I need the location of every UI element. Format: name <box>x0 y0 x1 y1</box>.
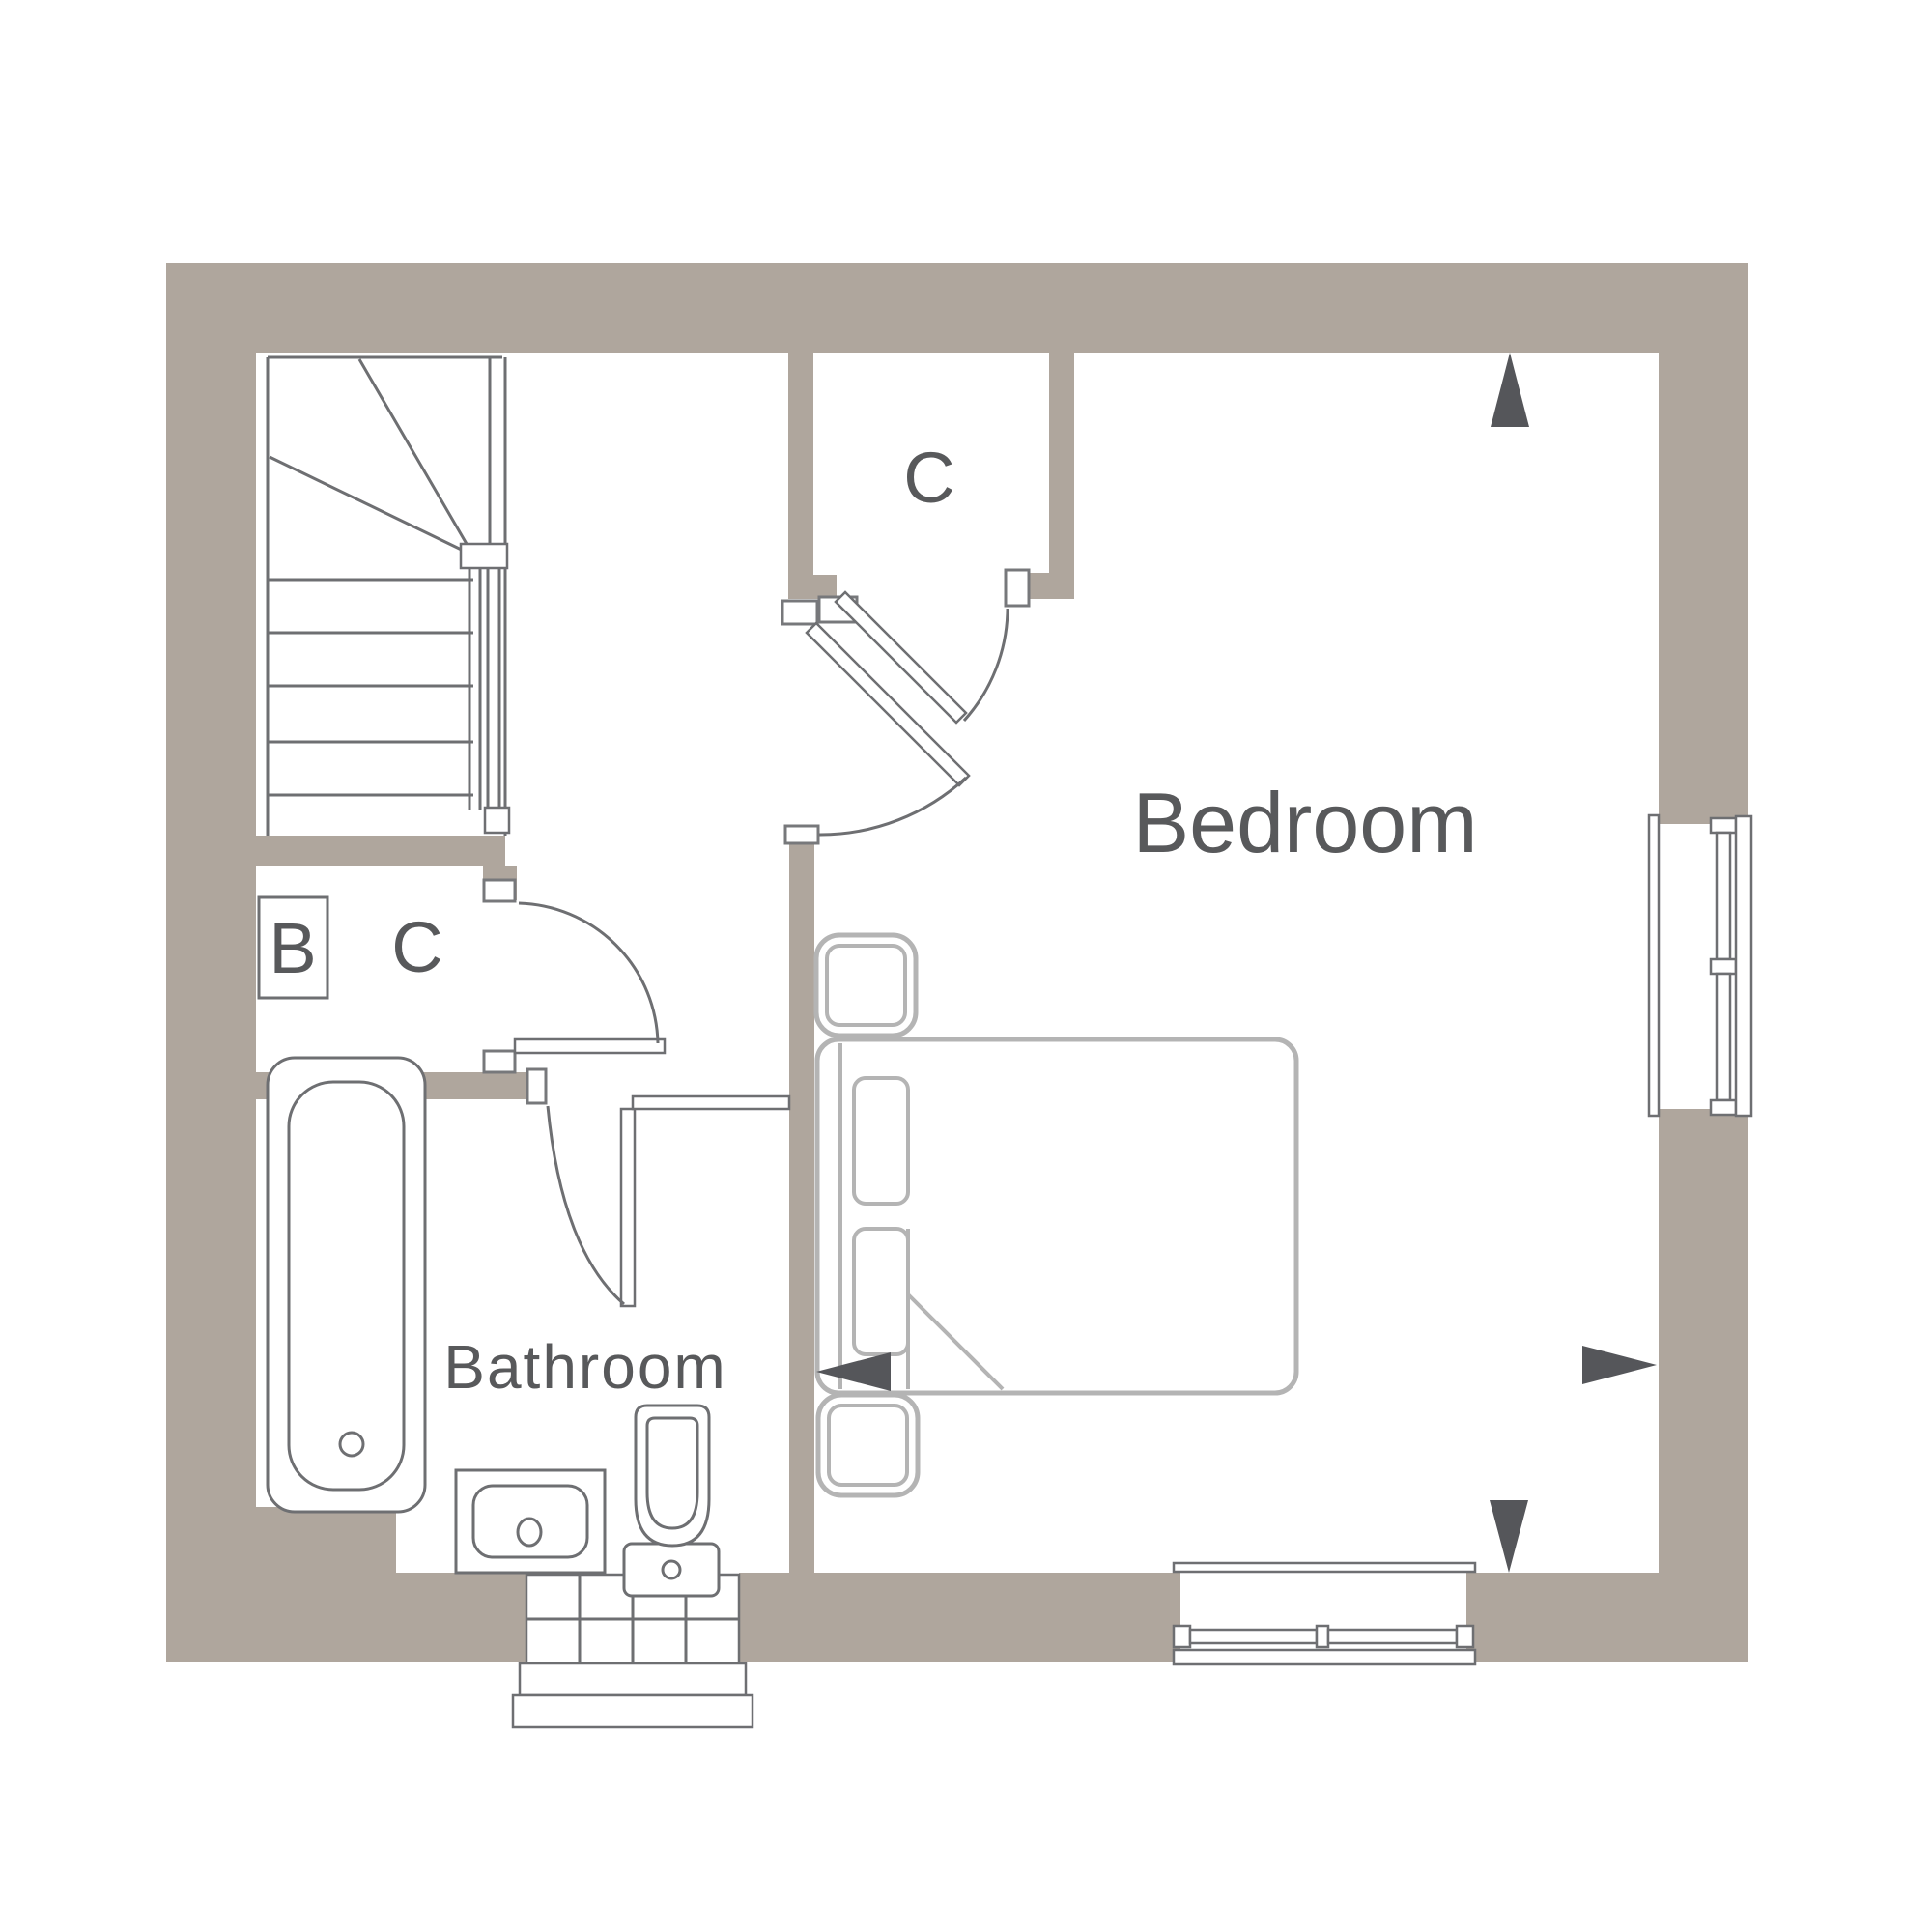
floor-plan: Bedroom Bathroom C C B <box>0 0 1932 1932</box>
stairs-winder-treads <box>270 359 473 555</box>
wall-closet-top-right-foot <box>1027 573 1074 599</box>
door-swing-cupboard <box>519 903 658 1043</box>
toilet-flush-button <box>663 1561 680 1578</box>
window-right-pane-2 <box>1717 974 1730 1100</box>
door-jambs <box>484 570 1029 1103</box>
window-right-outer-board <box>1736 816 1751 1116</box>
window-right-cap-top <box>1711 818 1736 833</box>
wall-bottom-right <box>1466 1573 1748 1662</box>
arrow-up-icon <box>1491 353 1529 427</box>
wall-closet-top-left-return <box>788 575 837 599</box>
wall-bath-south-thick <box>256 1507 396 1575</box>
label-closet-top: C <box>903 438 954 518</box>
window-right-mullion <box>1711 959 1736 974</box>
stairs-newel-post-bottom <box>485 808 509 833</box>
bathtub-inner <box>289 1082 404 1490</box>
steps-slab-1 <box>520 1663 746 1695</box>
wall-left <box>166 263 256 1662</box>
window-bottom-mullion <box>1317 1626 1328 1647</box>
label-boiler: B <box>269 908 316 988</box>
door-swing-closet-top <box>964 609 1008 721</box>
door-leaf-cupboard <box>515 1039 665 1053</box>
stairs-balustrade <box>469 568 499 810</box>
floor-plan-canvas: Bedroom Bathroom C C B <box>0 0 1932 1932</box>
bed <box>817 1039 1296 1393</box>
jamb-closet-top-catch <box>1006 570 1029 606</box>
toilet-bowl-inner <box>647 1418 697 1528</box>
window-right <box>1649 815 1751 1116</box>
wall-bottom-left <box>166 1573 526 1662</box>
window-right-pane-1 <box>1717 833 1730 959</box>
label-closet-hall: C <box>391 907 442 987</box>
label-bathroom: Bathroom <box>443 1332 726 1402</box>
window-bottom-cap-left <box>1174 1626 1190 1647</box>
jamb-cupboard-top <box>484 880 515 901</box>
wall-closet-top-right <box>1049 353 1074 577</box>
window-bottom-head <box>1174 1563 1475 1572</box>
wall-closet-top-left <box>788 353 813 575</box>
arrow-down-icon <box>1490 1500 1528 1573</box>
door-swing-bedroom <box>819 778 966 835</box>
window-bottom-pane-1 <box>1190 1630 1317 1643</box>
sink-drain <box>518 1519 541 1546</box>
wall-under-stairs <box>256 836 505 866</box>
window-bottom-pane-2 <box>1328 1630 1457 1643</box>
jamb-bathroom-door-catch <box>527 1069 546 1103</box>
jamb-cupboard-hinge <box>484 1051 515 1072</box>
stairs-treads <box>268 580 473 795</box>
stairs-newel-post-top <box>461 544 507 568</box>
window-right-cap-bottom <box>1711 1100 1736 1115</box>
wall-bedroom-west <box>789 843 814 1573</box>
label-bedroom: Bedroom <box>1132 775 1477 870</box>
window-bottom-sill-board <box>1174 1650 1475 1664</box>
wall-top <box>166 263 1748 353</box>
window-right-reveal <box>1649 815 1659 1116</box>
wall-right-upper <box>1659 353 1748 824</box>
wall-partition-thin <box>633 1096 789 1109</box>
wall-bottom-middle <box>739 1573 1180 1662</box>
staircase <box>268 357 509 836</box>
window-bottom-cap-right <box>1457 1626 1473 1647</box>
bedroom-furniture <box>816 935 1296 1495</box>
door-leaf-bathroom <box>621 1109 635 1306</box>
jamb-bedroom-door-catch <box>785 826 818 843</box>
window-bottom <box>1174 1563 1475 1664</box>
door-swing-bathroom <box>548 1106 624 1304</box>
door-leaf-closet-top <box>836 592 966 723</box>
arrow-right-icon <box>1582 1346 1657 1384</box>
entry-steps <box>513 1575 753 1727</box>
jamb-bedroom-door-hinge <box>782 601 817 624</box>
steps-slab-2 <box>513 1695 753 1727</box>
bathtub-drain <box>340 1433 363 1456</box>
